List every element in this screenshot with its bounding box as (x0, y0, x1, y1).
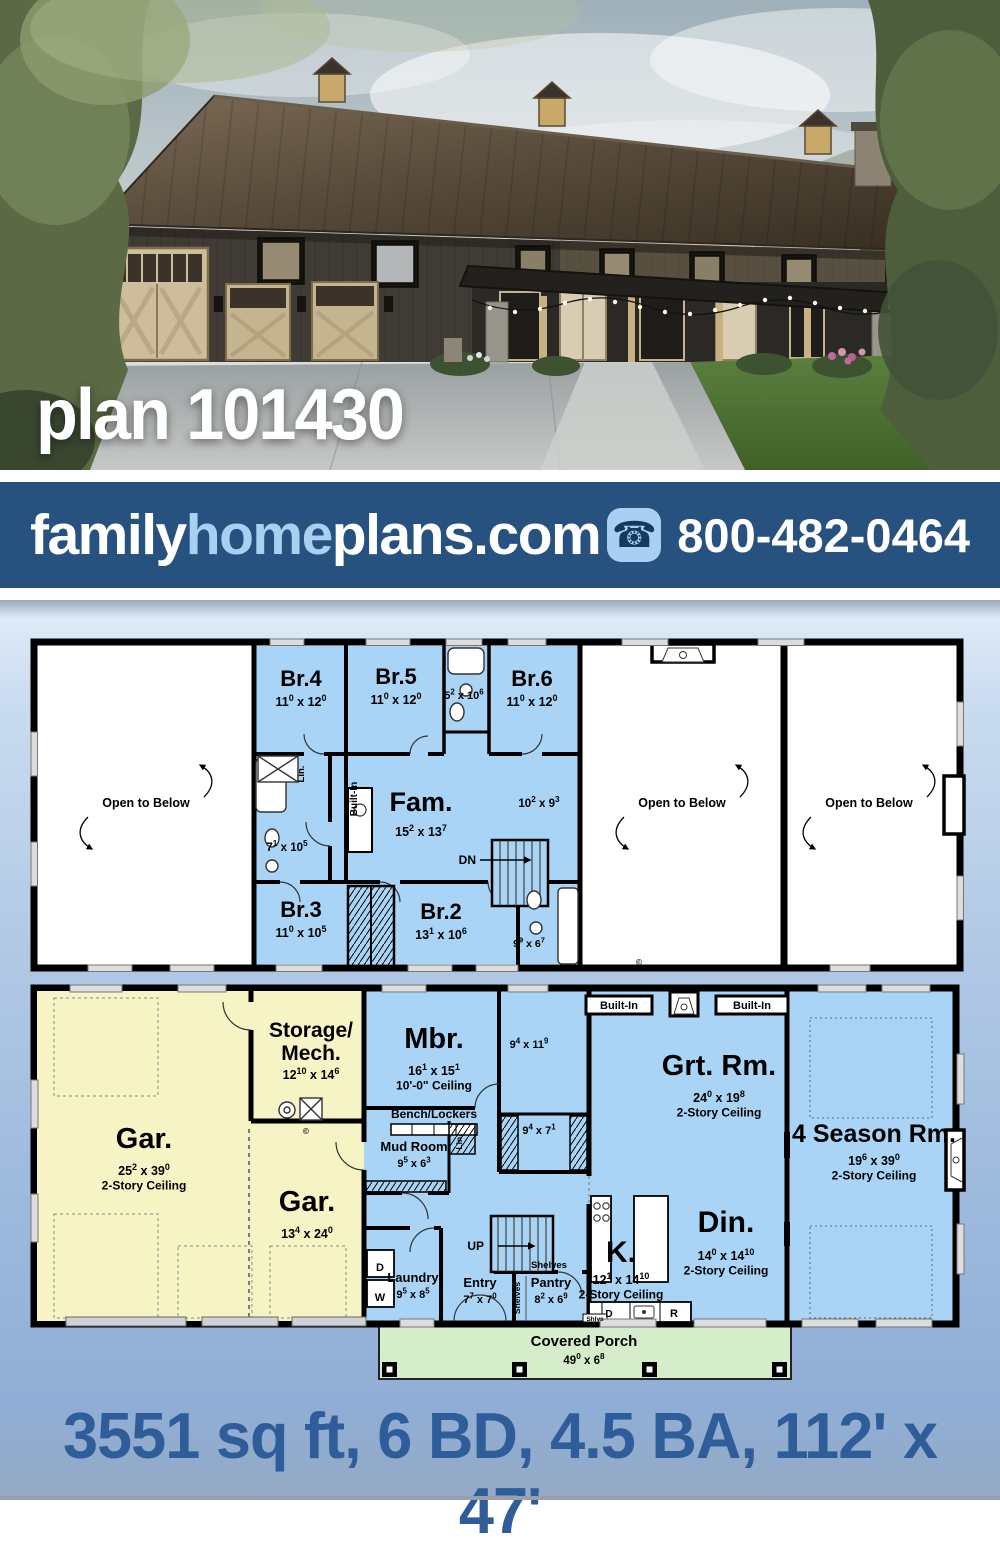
label-2-story-ceiling: 2-Story Ceiling (579, 1288, 664, 1302)
label-dimensions: 196 x 390 (848, 1152, 900, 1168)
label-dim: © (636, 958, 642, 967)
label-dimensions: 240 x 198 (693, 1089, 745, 1105)
label-2-story-ceiling: 2-Story Ceiling (832, 1169, 917, 1183)
divider-strip-bottom (0, 588, 1000, 600)
label-storage: Storage/ (269, 1019, 353, 1042)
banner-drop-shadow (0, 600, 1000, 618)
label-dimensions: 131 x 106 (415, 926, 467, 942)
label-pantry: Pantry (531, 1275, 572, 1290)
label-r: R (670, 1308, 678, 1320)
mudroom-lockers (366, 1181, 446, 1192)
label-laundry: Laundry (387, 1270, 439, 1285)
bottom-edge (0, 1496, 1000, 1500)
label-lin: Lin. (454, 1134, 464, 1149)
logo-home: home (186, 503, 332, 567)
label-lin: Lin. (296, 766, 307, 783)
label-dimensions: 152 x 137 (395, 823, 447, 839)
label-dimensions: 102 x 93 (518, 795, 560, 810)
label-br-6: Br.6 (511, 666, 553, 691)
label-open-to-below: Open to Below (825, 796, 913, 810)
label-br-3: Br.3 (280, 897, 322, 922)
label-dimensions: 94 x 119 (510, 1036, 549, 1051)
label-2-story-ceiling: 2-Story Ceiling (684, 1264, 769, 1278)
upper-floor-plan: Br.4110 x 120Br.5110 x 12052 x 106Br.611… (30, 638, 970, 973)
bedroom-closets (348, 886, 394, 966)
label-dimensions: 252 x 390 (118, 1162, 170, 1178)
garage-door-openings (66, 1317, 366, 1326)
label-entry: Entry (463, 1275, 497, 1290)
label-gar: Gar. (116, 1123, 172, 1155)
plan-number-title: plan 101430 (36, 374, 403, 456)
label-covered-porch: Covered Porch (531, 1333, 638, 1350)
label-shelves: Shelves (512, 1282, 522, 1314)
phone-contact[interactable]: ☎ 800-482-0464 (607, 508, 970, 563)
label-br-4: Br.4 (280, 666, 322, 691)
label-fam: Fam. (389, 787, 452, 817)
label-dimensions: 52 x 106 (444, 687, 484, 702)
label-din: Din. (698, 1206, 755, 1239)
label-dimensions: 110 x 105 (275, 924, 326, 940)
label-dimensions: 94 x 71 (522, 1122, 556, 1137)
label-dimensions: 110 x 120 (506, 693, 557, 709)
label-mech: Mech. (281, 1042, 341, 1065)
label-dimensions: 99 x 67 (513, 936, 545, 950)
label-dimensions: 134 x 240 (281, 1225, 333, 1241)
label-dimensions: 110 x 120 (370, 691, 421, 707)
logo-plans: plans.com (332, 503, 600, 567)
label-10-0-ceiling: 10'-0" Ceiling (396, 1079, 472, 1093)
label-br-2: Br.2 (420, 899, 462, 924)
label-2-story-ceiling: 2-Story Ceiling (677, 1106, 762, 1120)
label-dim: © (303, 1127, 309, 1136)
label-dimensions: 110 x 120 (275, 693, 326, 709)
label-dimensions: 82 x 69 (534, 1291, 568, 1306)
label-d: D (605, 1309, 612, 1320)
label-dimensions: 71 x 105 (266, 839, 308, 854)
label-built-in: Built-In (349, 782, 360, 816)
label-dn: DN (459, 853, 476, 867)
label-shelves: Shelves (531, 1260, 567, 1271)
label-built-in: Built-In (733, 1000, 771, 1012)
label-dimensions: 490 x 68 (563, 1352, 605, 1367)
label-dimensions: 77 x 70 (463, 1291, 497, 1306)
label-dimensions: 1210 x 146 (283, 1066, 340, 1082)
label-bench-lockers: Bench/Lockers (391, 1107, 477, 1121)
label-built-in: Built-In (600, 1000, 638, 1012)
logo-family: family (30, 503, 186, 567)
mbr-closet-left (501, 1116, 518, 1170)
label-up: UP (467, 1239, 484, 1253)
floor-plans-section: Br.4110 x 120Br.5110 x 12052 x 106Br.611… (0, 600, 1000, 1500)
plan-stats: 3551 sq ft, 6 BD, 4.5 BA, 112' x 47' (15, 1398, 985, 1548)
site-logo[interactable]: familyhomeplans.com (30, 502, 600, 568)
label-gar: Gar. (279, 1186, 335, 1218)
brand-banner: familyhomeplans.com ☎ 800-482-0464 (0, 482, 1000, 588)
label-shlvs: Shlvs (586, 1316, 604, 1323)
house-photo: plan 101430 (0, 0, 1000, 470)
label-4-season-rm: 4 Season Rm. (792, 1120, 956, 1148)
label-d: D (376, 1262, 384, 1274)
label-dimensions: 161 x 151 (408, 1062, 460, 1078)
label-2-story-ceiling: 2-Story Ceiling (102, 1179, 187, 1193)
divider-strip-top (0, 470, 1000, 482)
phone-number: 800-482-0464 (677, 508, 970, 563)
label-dimensions: 95 x 63 (397, 1155, 431, 1170)
phone-icon: ☎ (607, 508, 661, 562)
label-mbr: Mbr. (404, 1023, 464, 1055)
label-dimensions: 95 x 85 (396, 1286, 430, 1301)
label-k: K. (606, 1236, 636, 1269)
label-br-5: Br.5 (375, 664, 417, 689)
label-w: W (375, 1292, 386, 1304)
label-open-to-below: Open to Below (638, 796, 726, 810)
label-open-to-below: Open to Below (102, 796, 190, 810)
main-floor-plan: Gar.252 x 3902-Story CeilingStorage/Mech… (30, 984, 970, 1394)
label-mud-room: Mud Room (380, 1139, 447, 1154)
mbr-closet-right (570, 1116, 587, 1170)
label-grt-rm: Grt. Rm. (662, 1050, 776, 1082)
